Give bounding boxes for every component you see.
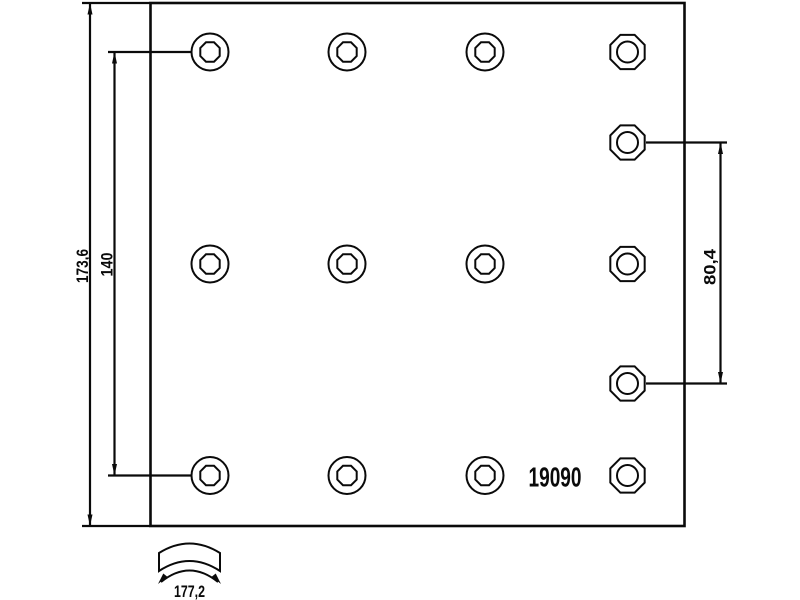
svg-text:173,6: 173,6 xyxy=(74,249,92,283)
svg-text:80,4: 80,4 xyxy=(702,248,720,285)
svg-text:140: 140 xyxy=(99,253,117,277)
svg-text:177,2: 177,2 xyxy=(174,583,205,600)
svg-text:19090: 19090 xyxy=(529,462,582,493)
